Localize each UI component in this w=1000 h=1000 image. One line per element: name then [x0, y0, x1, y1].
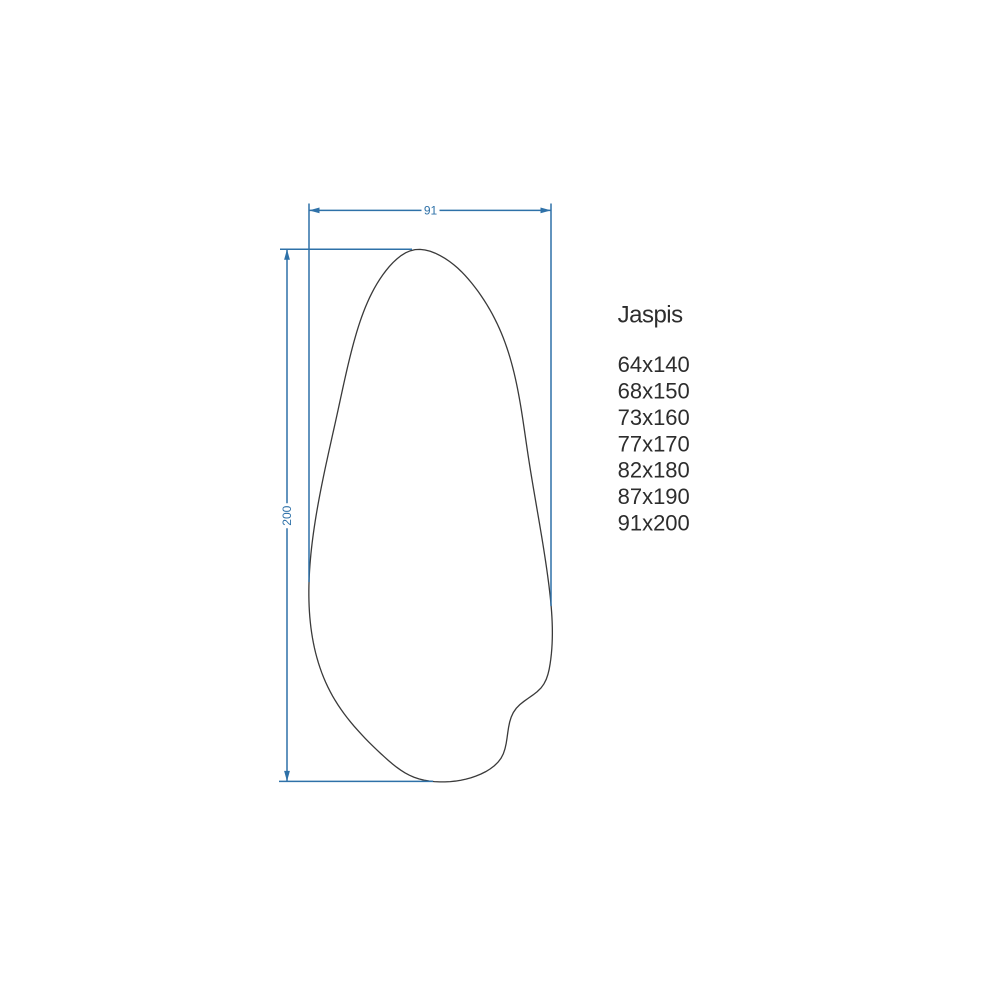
- svg-text:68x150: 68x150: [618, 378, 690, 403]
- svg-text:82x180: 82x180: [618, 458, 690, 483]
- svg-text:64x140: 64x140: [618, 352, 690, 377]
- svg-text:91: 91: [424, 204, 438, 218]
- svg-text:77x170: 77x170: [618, 431, 690, 456]
- svg-text:200: 200: [280, 505, 294, 525]
- svg-text:87x190: 87x190: [618, 484, 690, 509]
- svg-text:91x200: 91x200: [618, 511, 690, 536]
- svg-text:Jaspis: Jaspis: [618, 302, 684, 329]
- svg-text:73x160: 73x160: [618, 405, 690, 430]
